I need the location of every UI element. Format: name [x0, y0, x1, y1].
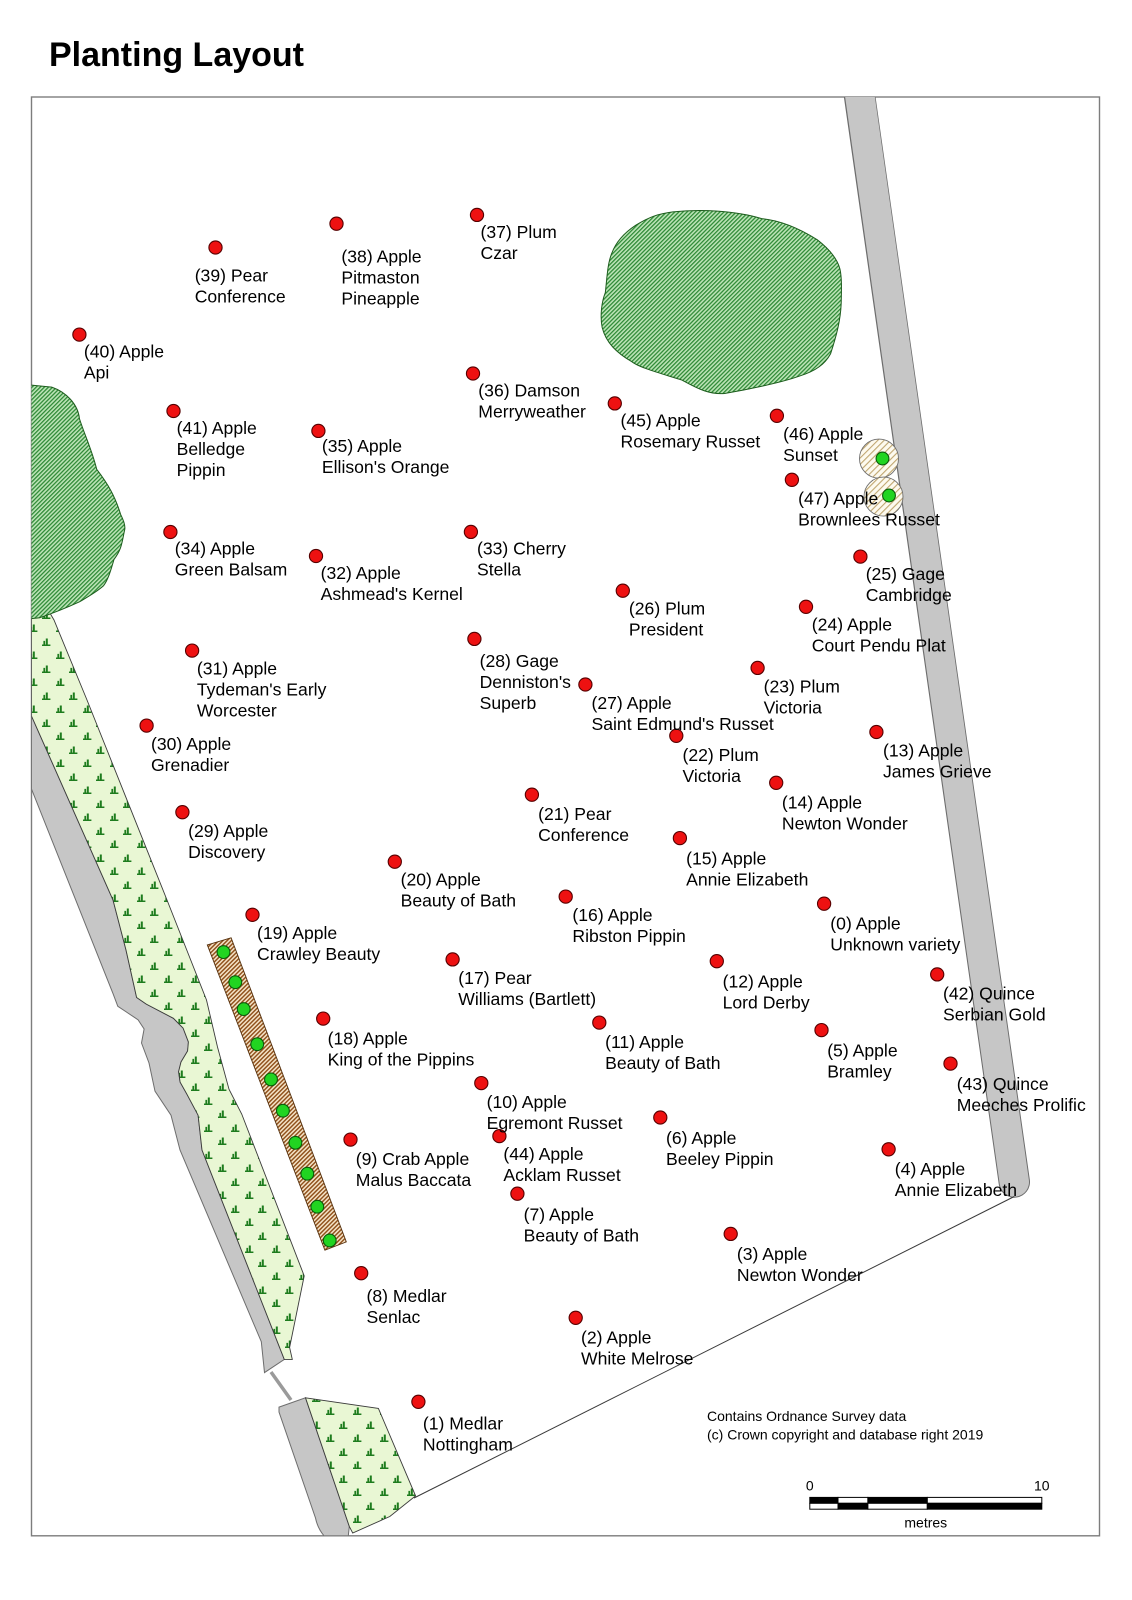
- svg-text:Senlac: Senlac: [367, 1307, 421, 1327]
- svg-text:(25) Gage: (25) Gage: [866, 564, 945, 584]
- svg-text:President: President: [629, 620, 703, 640]
- svg-text:Sunset: Sunset: [783, 445, 838, 465]
- svg-text:Conference: Conference: [538, 825, 629, 845]
- svg-text:(3) Apple: (3) Apple: [737, 1244, 807, 1264]
- svg-text:(44) Apple: (44) Apple: [503, 1144, 583, 1164]
- svg-text:Beauty of Bath: Beauty of Bath: [401, 891, 516, 911]
- svg-text:Malus Baccata: Malus Baccata: [356, 1170, 472, 1190]
- svg-text:(35) Apple: (35) Apple: [322, 436, 402, 456]
- svg-text:Pippin: Pippin: [177, 460, 226, 480]
- svg-text:Williams (Bartlett): Williams (Bartlett): [458, 989, 596, 1009]
- svg-text:(15) Apple: (15) Apple: [686, 848, 766, 868]
- svg-text:(13) Apple: (13) Apple: [883, 741, 963, 761]
- svg-text:Annie Elizabeth: Annie Elizabeth: [686, 869, 808, 889]
- svg-text:Serbian Gold: Serbian Gold: [943, 1005, 1046, 1025]
- svg-text:(4) Apple: (4) Apple: [895, 1159, 965, 1179]
- svg-text:(42) Quince: (42) Quince: [943, 984, 1035, 1004]
- svg-text:Merryweather: Merryweather: [478, 402, 586, 422]
- svg-text:Newton Wonder: Newton Wonder: [737, 1265, 863, 1285]
- svg-text:Conference: Conference: [195, 287, 286, 307]
- svg-text:(19) Apple: (19) Apple: [257, 923, 337, 943]
- svg-text:(20) Apple: (20) Apple: [401, 870, 481, 890]
- svg-text:(32) Apple: (32) Apple: [321, 563, 401, 583]
- svg-text:Discovery: Discovery: [188, 842, 265, 862]
- svg-text:Newton Wonder: Newton Wonder: [782, 814, 908, 834]
- svg-text:Czar: Czar: [481, 243, 518, 263]
- svg-text:(5) Apple: (5) Apple: [827, 1041, 897, 1061]
- svg-text:(8) Medlar: (8) Medlar: [367, 1286, 447, 1306]
- svg-text:Api: Api: [84, 363, 109, 383]
- svg-text:Pitmaston: Pitmaston: [341, 268, 419, 288]
- svg-text:Egremont Russet: Egremont Russet: [487, 1113, 623, 1133]
- svg-text:Beauty of Bath: Beauty of Bath: [524, 1225, 639, 1245]
- svg-text:(16) Apple: (16) Apple: [572, 905, 652, 925]
- svg-text:(28) Gage: (28) Gage: [480, 651, 559, 671]
- svg-text:(2) Apple: (2) Apple: [581, 1328, 651, 1348]
- svg-text:(39) Pear: (39) Pear: [195, 266, 268, 286]
- svg-text:(36) Damson: (36) Damson: [478, 381, 580, 401]
- svg-text:Court Pendu Plat: Court Pendu Plat: [812, 636, 946, 656]
- svg-text:(41) Apple: (41) Apple: [177, 418, 257, 438]
- svg-text:(7) Apple: (7) Apple: [524, 1204, 594, 1224]
- svg-text:Ashmead's Kernel: Ashmead's Kernel: [321, 584, 463, 604]
- svg-text:(40) Apple: (40) Apple: [84, 342, 164, 362]
- svg-text:(14) Apple: (14) Apple: [782, 793, 862, 813]
- svg-text:Tydeman's Early: Tydeman's Early: [197, 680, 327, 700]
- svg-text:King of the Pippins: King of the Pippins: [328, 1049, 475, 1069]
- svg-text:Annie Elizabeth: Annie Elizabeth: [895, 1180, 1017, 1200]
- svg-text:(12) Apple: (12) Apple: [723, 971, 803, 991]
- svg-text:(23) Plum: (23) Plum: [764, 676, 840, 696]
- svg-text:(33) Cherry: (33) Cherry: [477, 538, 566, 558]
- svg-text:Belledge: Belledge: [177, 439, 245, 459]
- svg-text:(30) Apple: (30) Apple: [151, 734, 231, 754]
- svg-text:Green Balsam: Green Balsam: [175, 559, 287, 579]
- svg-text:(37) Plum: (37) Plum: [481, 222, 557, 242]
- svg-text:Bramley: Bramley: [827, 1062, 892, 1082]
- svg-text:Contains Ordnance Survey data: Contains Ordnance Survey data: [707, 1408, 906, 1424]
- svg-text:(47) Apple: (47) Apple: [798, 488, 878, 508]
- svg-text:(9) Crab Apple: (9) Crab Apple: [356, 1149, 469, 1169]
- svg-text:White Melrose: White Melrose: [581, 1349, 693, 1369]
- svg-text:Grenadier: Grenadier: [151, 755, 229, 775]
- svg-text:(6) Apple: (6) Apple: [666, 1128, 736, 1148]
- svg-text:Beauty of Bath: Beauty of Bath: [605, 1053, 720, 1073]
- svg-text:Unknown variety: Unknown variety: [830, 935, 960, 955]
- svg-text:(17) Pear: (17) Pear: [458, 968, 531, 988]
- svg-text:(21) Pear: (21) Pear: [538, 804, 611, 824]
- svg-text:Worcester: Worcester: [197, 701, 277, 721]
- svg-text:(31) Apple: (31) Apple: [197, 659, 277, 679]
- svg-text:(10) Apple: (10) Apple: [487, 1092, 567, 1112]
- svg-text:Rosemary Russet: Rosemary Russet: [621, 432, 761, 452]
- svg-text:10: 10: [1034, 1478, 1050, 1494]
- svg-text:(c) Crown copyright and databa: (c) Crown copyright and database right 2…: [707, 1427, 983, 1443]
- svg-text:Brownlees Russet: Brownlees Russet: [798, 509, 940, 529]
- svg-text:Planting Layout: Planting Layout: [49, 36, 304, 74]
- svg-text:Nottingham: Nottingham: [423, 1435, 513, 1455]
- svg-text:metres: metres: [904, 1515, 947, 1531]
- svg-text:Saint Edmund's Russet: Saint Edmund's Russet: [592, 714, 774, 734]
- svg-text:Pineapple: Pineapple: [341, 289, 419, 309]
- svg-text:(27) Apple: (27) Apple: [592, 693, 672, 713]
- svg-text:(0) Apple: (0) Apple: [830, 914, 900, 934]
- svg-text:(34) Apple: (34) Apple: [175, 538, 255, 558]
- svg-text:Meeches Prolific: Meeches Prolific: [957, 1095, 1086, 1115]
- svg-text:0: 0: [806, 1478, 814, 1494]
- svg-text:(38) Apple: (38) Apple: [341, 247, 421, 267]
- svg-text:Beeley Pippin: Beeley Pippin: [666, 1149, 774, 1169]
- svg-text:(29) Apple: (29) Apple: [188, 821, 268, 841]
- svg-text:(1) Medlar: (1) Medlar: [423, 1414, 503, 1434]
- svg-text:(22) Plum: (22) Plum: [683, 745, 759, 765]
- svg-text:(18) Apple: (18) Apple: [328, 1028, 408, 1048]
- svg-text:James Grieve: James Grieve: [883, 762, 992, 782]
- svg-text:Stella: Stella: [477, 559, 521, 579]
- svg-text:Cambridge: Cambridge: [866, 585, 952, 605]
- svg-text:(46) Apple: (46) Apple: [783, 424, 863, 444]
- svg-text:(11) Apple: (11) Apple: [605, 1032, 684, 1052]
- svg-text:Victoria: Victoria: [683, 766, 742, 786]
- svg-text:Acklam Russet: Acklam Russet: [503, 1165, 620, 1185]
- svg-text:Denniston's: Denniston's: [480, 672, 572, 692]
- svg-text:(26) Plum: (26) Plum: [629, 599, 705, 619]
- svg-text:Superb: Superb: [480, 693, 537, 713]
- svg-text:Ribston Pippin: Ribston Pippin: [572, 926, 685, 946]
- svg-text:Lord Derby: Lord Derby: [723, 992, 810, 1012]
- svg-text:(43) Quince: (43) Quince: [957, 1074, 1049, 1094]
- svg-text:Crawley Beauty: Crawley Beauty: [257, 944, 380, 964]
- svg-text:(24) Apple: (24) Apple: [812, 615, 892, 635]
- svg-text:(45) Apple: (45) Apple: [621, 411, 701, 431]
- svg-text:Ellison's Orange: Ellison's Orange: [322, 457, 450, 477]
